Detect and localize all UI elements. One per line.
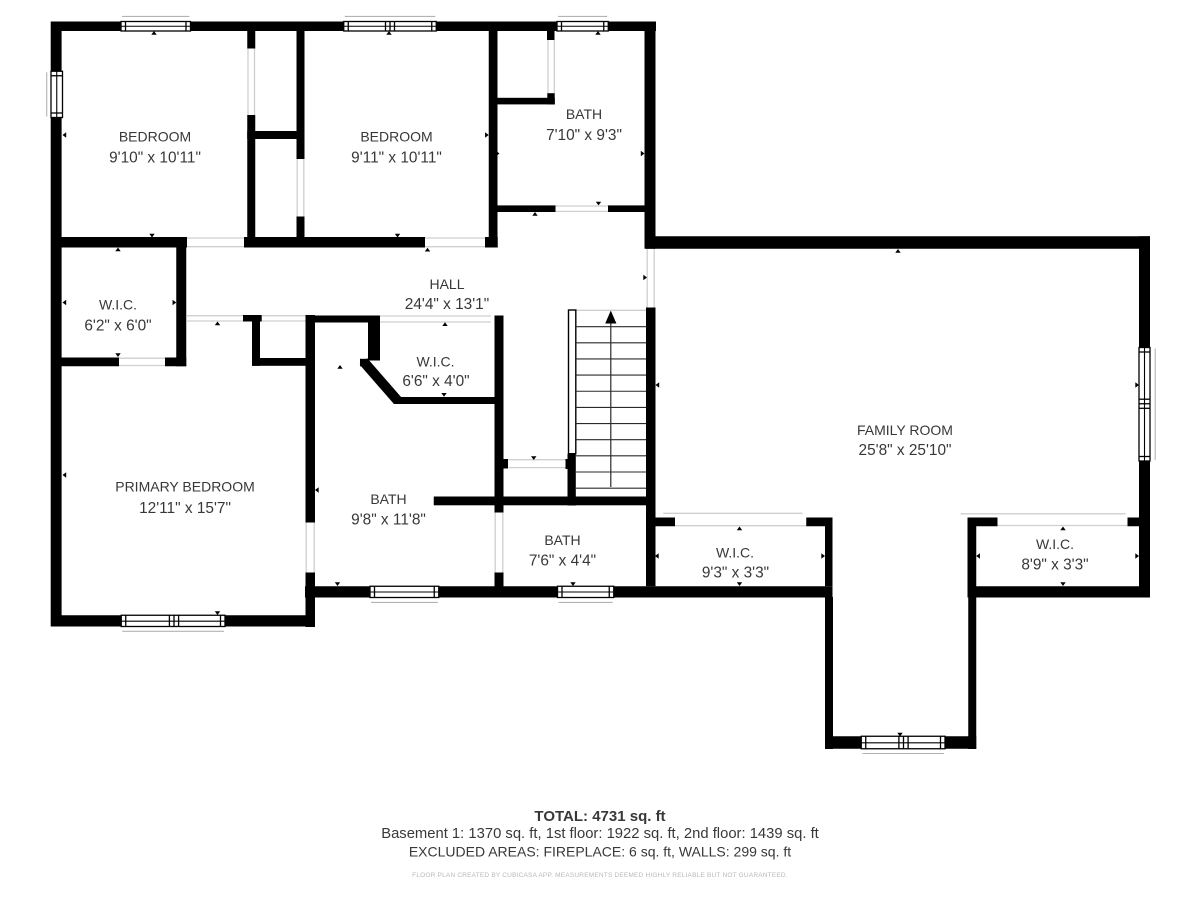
svg-text:BATH: BATH xyxy=(370,491,406,507)
svg-text:9'10" x 10'11": 9'10" x 10'11" xyxy=(109,149,201,166)
svg-text:6'2" x 6'0": 6'2" x 6'0" xyxy=(84,317,151,334)
svg-text:W.I.C.: W.I.C. xyxy=(716,544,754,560)
svg-text:9'11" x 10'11": 9'11" x 10'11" xyxy=(351,149,442,166)
svg-text:25'8" x 25'10": 25'8" x 25'10" xyxy=(859,442,952,459)
svg-text:W.I.C.: W.I.C. xyxy=(416,353,454,369)
svg-text:EXCLUDED AREAS: FIREPLACE: 6 s: EXCLUDED AREAS: FIREPLACE: 6 sq. ft, WAL… xyxy=(409,843,791,859)
svg-text:8'9" x 3'3": 8'9" x 3'3" xyxy=(1021,556,1088,573)
svg-text:9'8" x 11'8": 9'8" x 11'8" xyxy=(351,511,426,528)
svg-text:FLOOR PLAN CREATED BY CUBICASA: FLOOR PLAN CREATED BY CUBICASA APP. MEAS… xyxy=(412,872,788,879)
svg-text:W.I.C.: W.I.C. xyxy=(99,296,137,312)
svg-text:6'6" x 4'0": 6'6" x 4'0" xyxy=(402,373,469,390)
svg-text:7'10" x 9'3": 7'10" x 9'3" xyxy=(546,127,622,144)
svg-text:FAMILY ROOM: FAMILY ROOM xyxy=(857,422,953,438)
svg-text:BEDROOM: BEDROOM xyxy=(119,128,191,144)
svg-text:BATH: BATH xyxy=(544,532,580,548)
svg-text:Basement 1: 1370 sq. ft, 1st f: Basement 1: 1370 sq. ft, 1st floor: 1922… xyxy=(381,826,819,842)
svg-text:TOTAL: 4731 sq. ft: TOTAL: 4731 sq. ft xyxy=(534,808,665,825)
svg-text:PRIMARY BEDROOM: PRIMARY BEDROOM xyxy=(115,478,255,494)
svg-text:W.I.C.: W.I.C. xyxy=(1036,536,1074,552)
svg-text:HALL: HALL xyxy=(429,276,464,292)
svg-text:12'11" x 15'7": 12'11" x 15'7" xyxy=(139,500,231,517)
svg-text:9'3" x 3'3": 9'3" x 3'3" xyxy=(702,564,769,581)
svg-text:BEDROOM: BEDROOM xyxy=(360,128,432,144)
svg-text:7'6" x 4'4": 7'6" x 4'4" xyxy=(529,552,596,569)
svg-text:24'4" x 13'1": 24'4" x 13'1" xyxy=(405,296,489,313)
svg-text:BATH: BATH xyxy=(566,106,602,122)
